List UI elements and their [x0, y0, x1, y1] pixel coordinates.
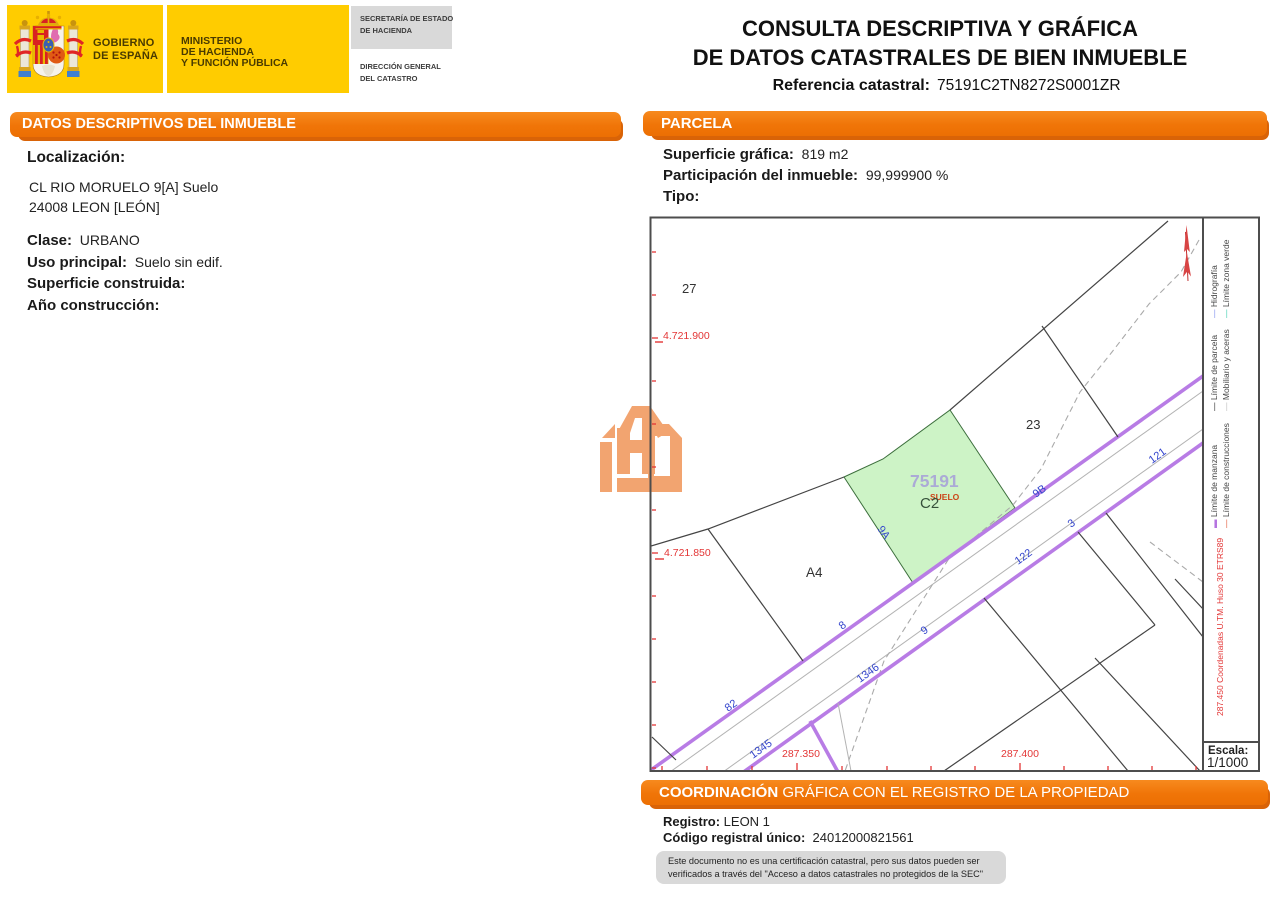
svg-text:— Límite zona verde: — Límite zona verde — [1221, 239, 1231, 318]
svg-text:27: 27 — [682, 281, 696, 296]
svg-text:▬ Límite de manzana: ▬ Límite de manzana — [1209, 445, 1219, 528]
svg-text:82: 82 — [723, 698, 740, 715]
svg-text:23: 23 — [1026, 417, 1040, 432]
svg-text:287.400: 287.400 — [1001, 748, 1039, 760]
svg-text:— Límite de parcela: — Límite de parcela — [1209, 335, 1219, 411]
svg-text:— Hidrografía: — Hidrografía — [1209, 265, 1219, 318]
svg-text:1/1000: 1/1000 — [1207, 755, 1248, 770]
svg-text:— Mobiliario y aceras: — Mobiliario y aceras — [1221, 329, 1231, 411]
svg-text:9: 9 — [919, 624, 931, 637]
svg-text:A4: A4 — [806, 565, 823, 580]
svg-text:4.721.850: 4.721.850 — [664, 547, 711, 559]
svg-text:121: 121 — [1147, 446, 1169, 466]
svg-text:287.450 Coordenadas U.TM. Huso: 287.450 Coordenadas U.TM. Huso 30 ETRS89 — [1215, 538, 1225, 716]
svg-text:— Límite de construcciones: — Límite de construcciones — [1221, 423, 1231, 528]
svg-text:75191: 75191 — [910, 471, 959, 491]
svg-text:287.350: 287.350 — [782, 748, 820, 760]
svg-text:3: 3 — [1066, 517, 1078, 530]
svg-text:4.721.900: 4.721.900 — [663, 330, 710, 342]
svg-text:C2: C2 — [920, 495, 939, 512]
